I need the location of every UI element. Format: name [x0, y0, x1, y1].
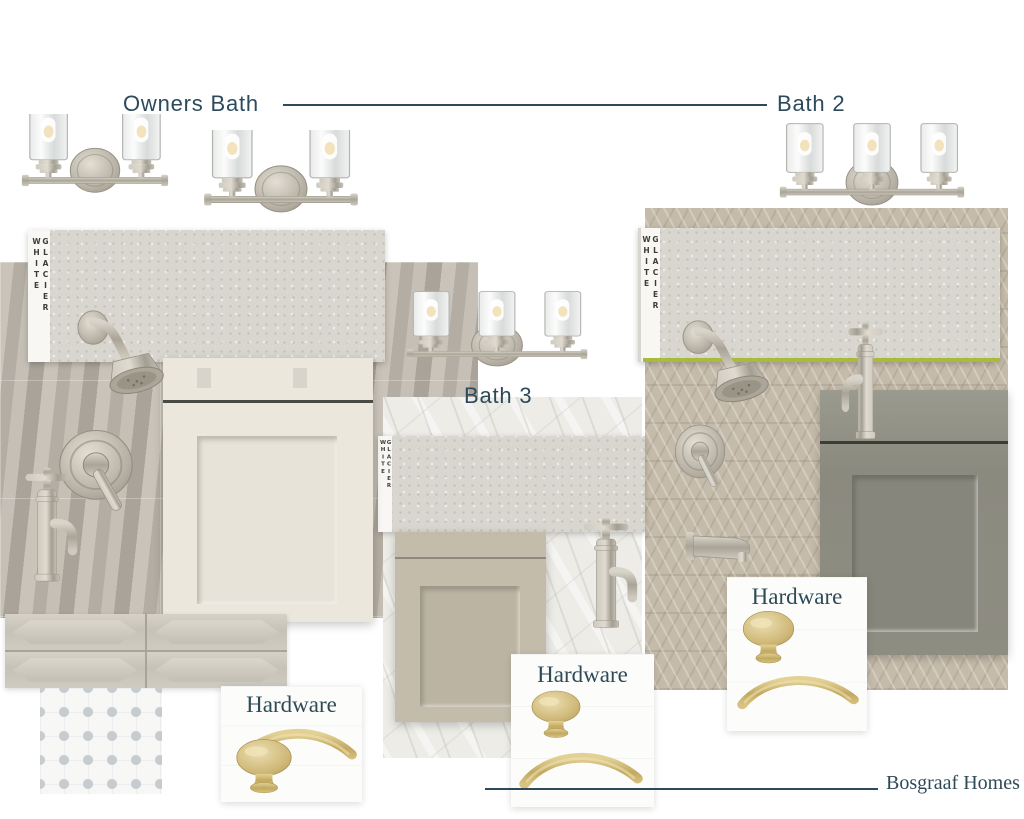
bath-2-countertop-label: GLACIER WHITE — [641, 228, 660, 362]
bath-3-title: Bath 3 — [464, 383, 532, 409]
picket-tile — [5, 652, 145, 688]
cabinet-door-panel — [420, 586, 520, 707]
bath-2-sink-faucet — [838, 320, 890, 448]
owners-bath-mosaic-tile-sample — [40, 688, 162, 794]
picket-tile — [147, 614, 287, 650]
bath-2-shower-head — [678, 316, 774, 412]
owners-bath-sink-faucet — [16, 466, 82, 590]
bath-2-knob — [737, 608, 800, 668]
cabinet-door-panel — [197, 436, 337, 604]
bath-2-title: Bath 2 — [777, 91, 845, 117]
owners-bath-title: Owners Bath — [123, 91, 259, 117]
footer-line — [485, 788, 878, 790]
title-connector-line — [283, 104, 767, 106]
bath-2-vanity-light — [776, 122, 968, 216]
bath-3-knob — [526, 688, 586, 742]
bath-3-sink-faucet — [574, 516, 642, 636]
bath-2-pull-handle — [734, 666, 862, 712]
bath-3-countertop-label: GLACIER WHITE — [378, 436, 392, 532]
owners-bath-vanity-light-left — [16, 114, 174, 202]
cabinet-drawer-notch — [197, 368, 211, 388]
bath-3-vanity-light — [403, 290, 591, 376]
picket-tile — [147, 652, 287, 688]
owners-bath-knob — [230, 736, 298, 798]
design-board: GLACIER WHITE GLACIER WHITE GLACIER WHIT… — [0, 0, 1024, 819]
cabinet-door-panel — [852, 475, 978, 632]
owners-bath-vanity-light-right — [198, 130, 364, 222]
picket-tile — [5, 614, 145, 650]
bath-2-shower-valve — [670, 420, 730, 500]
bath-2-hardware-title: Hardware — [727, 584, 867, 610]
bath-2-tub-spout — [684, 526, 758, 568]
owners-bath-countertop-label: GLACIER WHITE — [28, 230, 50, 362]
cabinet-groove — [163, 400, 373, 403]
owners-bath-hardware-title: Hardware — [221, 692, 362, 718]
owners-bath-picket-tile-sample — [5, 614, 287, 688]
brand-name: Bosgraaf Homes — [886, 772, 1020, 795]
cabinet-groove — [395, 557, 546, 559]
bath-3-hardware-title: Hardware — [511, 662, 654, 688]
owners-bath-cabinet-sample — [163, 358, 373, 622]
owners-bath-shower-head — [73, 306, 169, 404]
cabinet-drawer-notch — [293, 368, 307, 388]
bath-3-pull-handle — [516, 742, 646, 792]
